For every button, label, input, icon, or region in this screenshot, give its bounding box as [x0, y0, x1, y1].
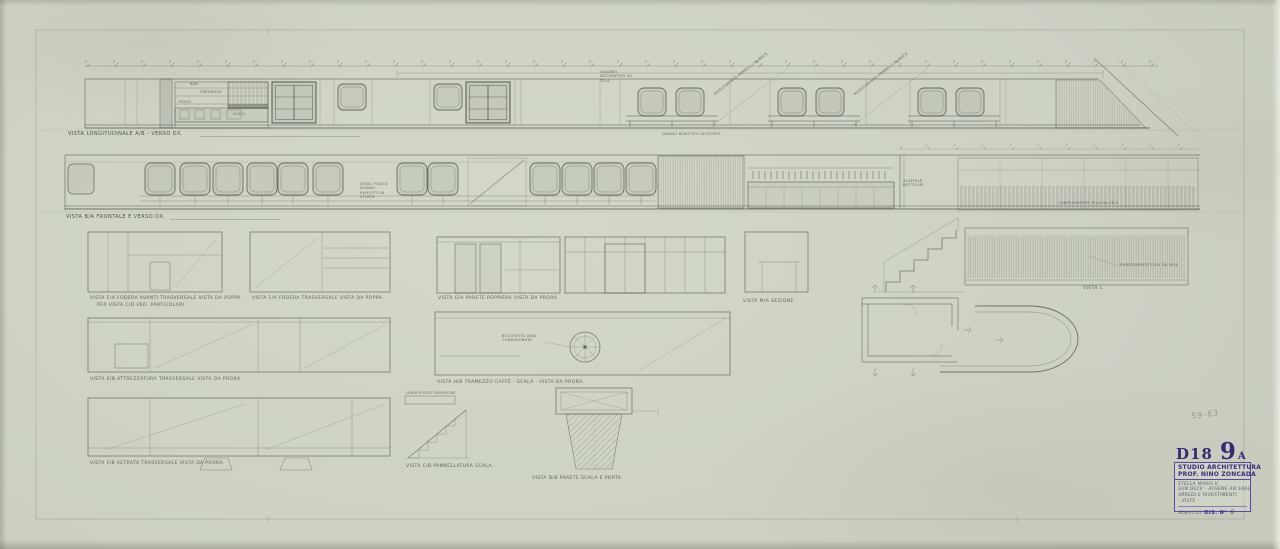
panel-ma: [745, 232, 808, 292]
bar-cabinet: [175, 82, 268, 128]
annotation-bar: BAR.: [190, 82, 199, 86]
project-line4: - VISTE -: [1178, 499, 1247, 505]
annotation-frigo: FRIGO: [179, 100, 191, 104]
blueprint-sheet: VISTA LONGITUDINALE A/B - VERSO DX. VIST…: [0, 0, 1280, 549]
annotation-linea-ponte: LINEA PONTE SUPERIORE: [406, 391, 456, 395]
caption-panel-l: VISTA L.: [1083, 286, 1104, 291]
panel-ga: [437, 237, 560, 293]
plan-detail: [862, 285, 1078, 376]
window: [434, 84, 462, 110]
window-row: [145, 163, 656, 195]
annotation-sedili: SEDILI FISSI A DIVANO RIVESTITI IN STOFF…: [360, 182, 394, 200]
dis-label: DIS. N°: [1204, 510, 1227, 516]
panel-fb: [88, 398, 390, 470]
caption-panel-fa: VISTA F/A FODERA TRASVERSALE VISTA DA PO…: [252, 296, 384, 301]
panel-l: [965, 228, 1188, 285]
caption-elevation-top: VISTA LONGITUDINALE A/B - VERSO DX.: [68, 131, 183, 137]
caption-panel-ga: VISTA G/A PARETE POPPIERA VISTA DA PRORA…: [438, 296, 559, 301]
annotation-divano: DIVANO RIVESTITO IN STOFFA: [662, 132, 721, 136]
dis-number: 9: [1230, 508, 1234, 516]
annotation-credenza: CREDENZA: [200, 90, 222, 94]
grid-door: [466, 82, 510, 123]
scale-label: SCALA 1:25: [1178, 510, 1201, 515]
window-pairs: [626, 88, 1000, 127]
caption-panel-eb: VISTA E/B ATTREZZATURA TRASVERSALE VISTA…: [90, 377, 242, 382]
studio-name-line2: PROF. NINO ZONCADA: [1178, 471, 1247, 478]
caption-rule: [200, 136, 360, 137]
title-block-divider: [1175, 479, 1250, 480]
window: [338, 84, 366, 110]
bar-counter: [748, 168, 894, 208]
panel-fa: [250, 232, 390, 292]
panel-ha: [565, 237, 725, 293]
elevation-longitudinal: [38, 58, 1240, 136]
panel-eb: [88, 318, 390, 372]
caption-panel-fb: VISTA F/B VETRATA TRASVERSALE VISTA DA P…: [90, 461, 225, 466]
stamp-number: 9: [1220, 438, 1236, 465]
annotation-quadro: QUADRO DECORATIVO SU TELA: [600, 70, 638, 83]
stamp-suffix: A: [1238, 451, 1246, 462]
annotation-bocchetta: BOCCHETTA ARIA CONDIZIONATA: [502, 334, 542, 343]
panel-hb: [435, 312, 730, 375]
annotation-bottiglie: SCAFFALE BOTTIGLIE: [903, 179, 933, 188]
studio-name-line1: STUDIO ARCHITETTURA: [1178, 464, 1247, 471]
caption-elevation-front: VISTA B/A FRONTALE E VERSO DX.: [66, 214, 165, 220]
project-line3: ARREDI E RIVESTIMENTI: [1178, 493, 1247, 499]
drawing-number-stamp: D189A: [1176, 438, 1246, 465]
title-block: STUDIO ARCHITETTURA PROF. NINO ZONCADA S…: [1174, 462, 1251, 512]
panel-db: [556, 388, 658, 469]
panel-ea: [88, 232, 222, 292]
caption-panel-ea-2: PER VISTA C/D VED. PARTICOLARI.: [97, 303, 186, 308]
panel-cb: [405, 396, 470, 458]
stamp-code: D18: [1176, 445, 1213, 463]
caption-panel-hb: VISTA H/B TRAMEZZO CAFFÈ - SCALA - VISTA…: [437, 380, 584, 385]
title-block-bottom-row: SCALA 1:25 DIS. N° 9: [1178, 506, 1247, 516]
hull-taper: [1056, 58, 1196, 136]
annotation-dolci: DOLCI: [233, 112, 245, 116]
caption-rule: [170, 219, 280, 220]
caption-panel-cb: VISTA C/B PANNELLATURA SCALA.: [406, 464, 494, 469]
ventilation-rose: [570, 332, 600, 362]
grid-door: [272, 82, 316, 123]
annotation-controparete: CONTROPARETE TELA DA VELE: [1058, 201, 1119, 205]
staircase-profile: [878, 218, 964, 292]
annotation-rivestimento: RIVESTIMENTO TELA DA VELE: [1120, 263, 1179, 267]
caption-panel-db: VISTA D/B PARETE SCALA E PORTA.: [532, 476, 623, 481]
caption-panel-ma: VISTA M/A SEZIONE.: [743, 299, 796, 304]
caption-panel-ea: VISTA E/A FODERA AVANTI TRASVERSALE VIST…: [90, 296, 241, 301]
